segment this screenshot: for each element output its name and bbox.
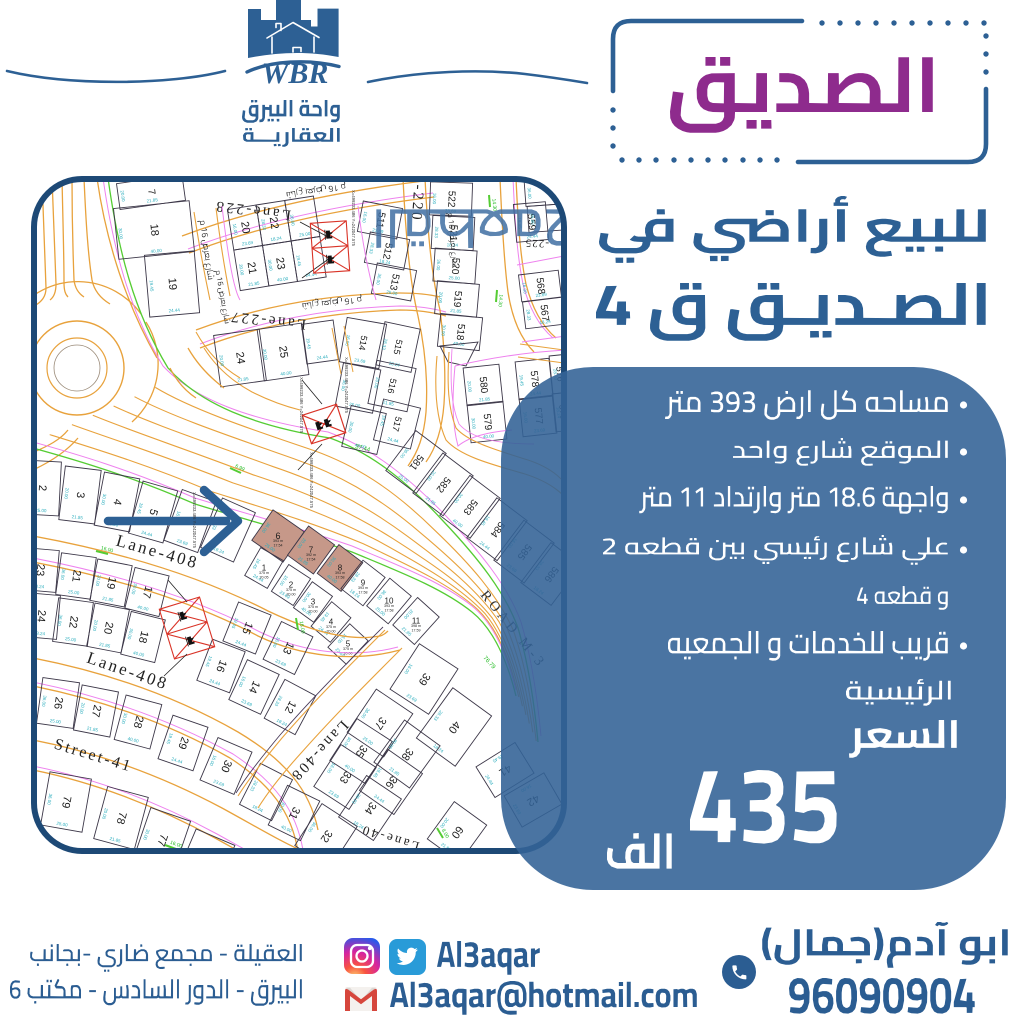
svg-text:WBR: WBR <box>262 57 329 90</box>
